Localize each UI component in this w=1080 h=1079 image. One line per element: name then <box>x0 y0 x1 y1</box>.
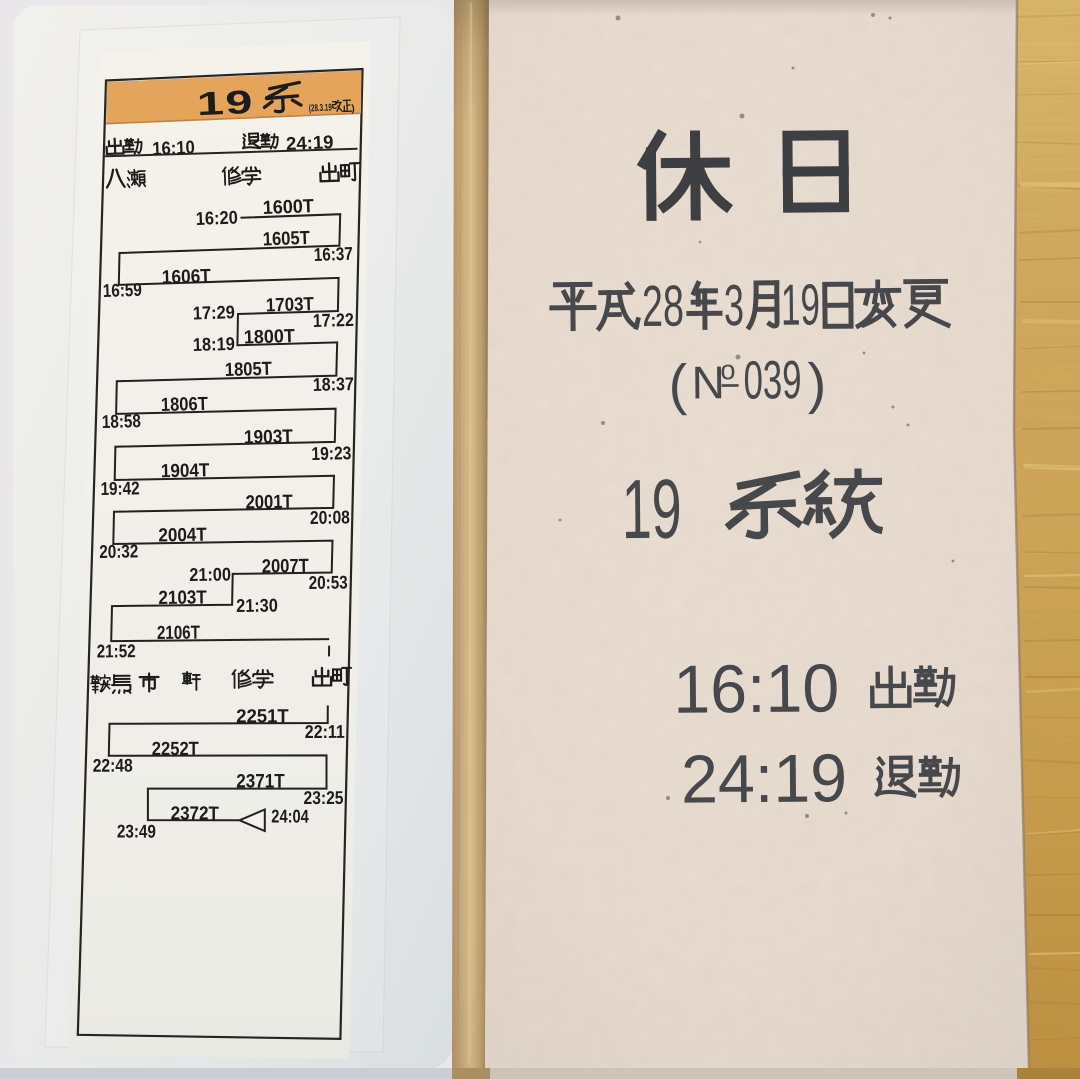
svg-text:19: 19 <box>196 83 255 122</box>
svg-text:1605T: 1605T <box>262 228 310 251</box>
svg-text:19:42: 19:42 <box>100 477 139 499</box>
svg-text:19:23: 19:23 <box>311 442 351 464</box>
svg-text:18:37: 18:37 <box>313 373 355 395</box>
svg-text:16:59: 16:59 <box>102 279 142 301</box>
svg-text:20:08: 20:08 <box>310 506 350 528</box>
svg-text:039: 039 <box>743 350 802 411</box>
svg-text:22:48: 22:48 <box>93 755 133 776</box>
svg-text:2372T: 2372T <box>171 804 220 825</box>
svg-text:(: ( <box>668 353 688 416</box>
svg-text:19: 19 <box>781 272 821 337</box>
svg-text:18:58: 18:58 <box>102 410 141 432</box>
svg-text:20:53: 20:53 <box>309 572 348 593</box>
svg-text:21:52: 21:52 <box>97 640 136 661</box>
svg-text:24:19: 24:19 <box>681 740 848 817</box>
svg-text:18:19: 18:19 <box>193 333 236 355</box>
svg-text:1600T: 1600T <box>262 196 314 219</box>
svg-text:1606T: 1606T <box>161 266 211 289</box>
svg-text:1703T: 1703T <box>266 294 315 316</box>
svg-text:24:04: 24:04 <box>271 806 309 827</box>
svg-text:1806T: 1806T <box>161 394 209 416</box>
svg-text:2106T: 2106T <box>157 623 201 644</box>
svg-text:2103T: 2103T <box>158 587 207 609</box>
svg-text:2007T: 2007T <box>262 556 310 578</box>
svg-text:2004T: 2004T <box>158 525 207 547</box>
svg-text:1805T: 1805T <box>225 359 273 381</box>
svg-text:17:29: 17:29 <box>192 301 235 323</box>
svg-text:(28.3.19: (28.3.19 <box>309 103 333 115</box>
svg-text:16:20: 16:20 <box>195 207 238 229</box>
svg-text:1903T: 1903T <box>244 426 294 448</box>
svg-text:16:37: 16:37 <box>313 243 353 265</box>
svg-text:16:10: 16:10 <box>673 650 840 727</box>
svg-text:2371T: 2371T <box>236 772 285 793</box>
svg-text:28: 28 <box>642 274 685 339</box>
svg-text:o: o <box>720 355 735 385</box>
svg-text:): ) <box>807 351 826 414</box>
svg-text:2252T: 2252T <box>152 739 199 760</box>
svg-text:21:30: 21:30 <box>236 595 278 616</box>
svg-text:2001T: 2001T <box>245 492 293 514</box>
svg-text:1800T: 1800T <box>244 326 296 348</box>
svg-text:20:32: 20:32 <box>99 540 138 562</box>
svg-text:1904T: 1904T <box>161 460 210 482</box>
svg-text:17:22: 17:22 <box>313 309 355 331</box>
svg-text:22:11: 22:11 <box>305 721 345 742</box>
svg-text:3: 3 <box>724 273 745 338</box>
svg-text:23:49: 23:49 <box>117 821 156 842</box>
svg-text:23:25: 23:25 <box>303 787 343 808</box>
svg-text:21:00: 21:00 <box>189 563 231 585</box>
svg-text:2251T: 2251T <box>236 706 289 727</box>
svg-text:19: 19 <box>621 462 682 557</box>
svg-text:): ) <box>351 103 355 114</box>
